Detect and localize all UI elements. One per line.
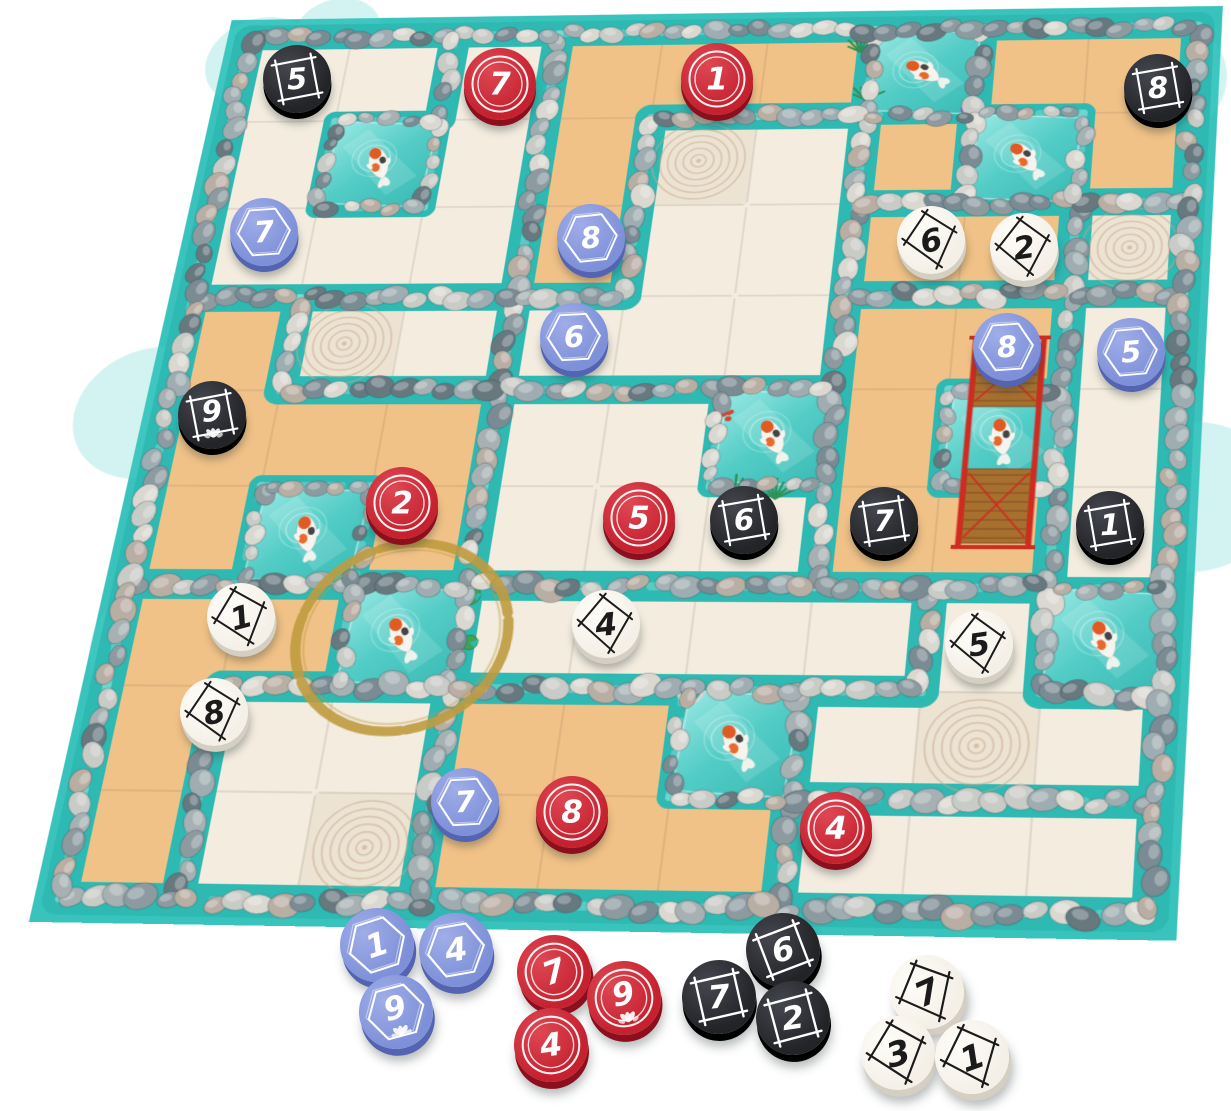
token-black-5[interactable]: 5 [261, 43, 334, 116]
token-number: 5 [286, 61, 309, 96]
token-red-4[interactable]: 4 [509, 1003, 593, 1087]
token-number: 6 [733, 502, 755, 537]
board-graphic [60, 25, 1198, 915]
token-blue-7[interactable]: 7 [228, 196, 301, 269]
token-white-4[interactable]: 4 [569, 587, 644, 662]
token-number: 1 [226, 598, 256, 638]
token-number: 1 [361, 923, 394, 966]
token-number: 6 [563, 319, 585, 354]
token-number: 7 [873, 504, 895, 539]
token-number: 6 [917, 221, 946, 261]
grout-line [750, 204, 853, 205]
pebble [1151, 754, 1175, 783]
token-black-7[interactable]: 7 [849, 486, 919, 556]
token-white-5[interactable]: 5 [941, 606, 1018, 683]
token-number: 7 [706, 977, 733, 1017]
token-number: 6 [768, 929, 799, 971]
token-number: 8 [200, 693, 229, 733]
grout-line [925, 692, 1038, 693]
token-red-9[interactable]: 9 [580, 954, 668, 1042]
token-number: 4 [441, 929, 470, 970]
token-black-1[interactable]: 1 [1074, 489, 1145, 560]
token-blue-5[interactable]: 5 [1094, 315, 1168, 389]
token-number: 5 [1119, 334, 1142, 370]
grout-line [628, 296, 731, 297]
token-black-2[interactable]: 2 [751, 976, 835, 1060]
token-number: 5 [628, 501, 650, 537]
token-blue-8[interactable]: 8 [554, 201, 629, 276]
token-number: 7 [537, 950, 572, 994]
pebble [935, 425, 952, 444]
token-red-1[interactable]: 1 [681, 43, 753, 115]
token-number: 2 [1011, 229, 1037, 268]
token-number: 1 [1099, 507, 1121, 542]
grout-line [642, 205, 744, 206]
token-number: 5 [966, 626, 992, 665]
token-number: 7 [489, 67, 511, 103]
token-white-6[interactable]: 6 [891, 200, 972, 281]
token-number: 8 [579, 220, 603, 256]
token-number: 3 [882, 1032, 915, 1076]
pebble [1097, 582, 1124, 601]
token-number: 9 [608, 973, 638, 1015]
token-number: 1 [706, 62, 728, 98]
lotus-icon [203, 427, 224, 440]
token-number: 9 [200, 393, 223, 428]
token-number: 7 [253, 214, 276, 249]
token-number: 4 [824, 811, 847, 847]
token-red-2[interactable]: 2 [366, 467, 438, 539]
token-white-2[interactable]: 2 [986, 209, 1063, 286]
pebble [1046, 550, 1064, 573]
game-board[interactable] [60, 25, 1198, 915]
token-number: 4 [536, 1024, 564, 1065]
token-number: 1 [955, 1035, 991, 1080]
token-black-6[interactable]: 6 [708, 484, 779, 555]
token-number: 8 [996, 329, 1019, 364]
token-number: 8 [561, 795, 583, 831]
token-red-8[interactable]: 8 [536, 776, 608, 848]
token-black-7[interactable]: 7 [678, 956, 759, 1037]
token-number: 8 [1147, 70, 1169, 105]
token-number: 7 [454, 784, 477, 819]
token-white-8[interactable]: 8 [174, 672, 255, 753]
token-blue-7[interactable]: 7 [429, 766, 500, 837]
token-red-4[interactable]: 4 [800, 792, 872, 864]
token-red-7[interactable]: 7 [464, 48, 536, 120]
token-red-5[interactable]: 5 [603, 482, 675, 554]
game-photo: 571878626859256711458784149794672731 [0, 0, 1231, 1111]
grout-line [738, 295, 842, 296]
token-blue-6[interactable]: 6 [538, 301, 609, 372]
token-number: 2 [391, 486, 413, 522]
token-number: 9 [379, 987, 410, 1029]
token-black-8[interactable]: 8 [1122, 52, 1193, 123]
token-number: 4 [592, 606, 618, 644]
token-black-9[interactable]: 9 [176, 379, 249, 452]
token-number: 2 [779, 997, 806, 1038]
grout-line [427, 206, 527, 207]
token-blue-8[interactable]: 8 [971, 311, 1044, 384]
